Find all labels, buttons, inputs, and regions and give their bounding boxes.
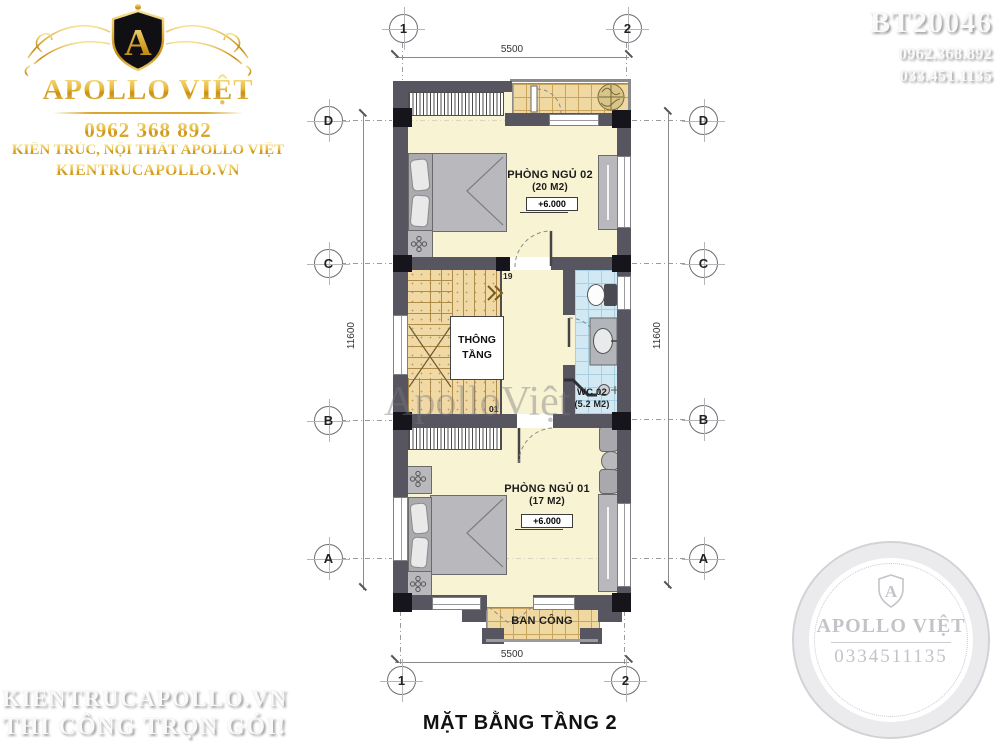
company-seal: A APOLLO VIỆT 0334511135	[792, 541, 990, 739]
stair-direction-arrow	[488, 286, 502, 300]
floor-plan-sheet: A APOLLO VIỆT 0962 368 892 KIẾN TRÚC, NỘ…	[0, 0, 1000, 750]
void-label-box: THÔNG TẦNG	[450, 316, 504, 380]
axis-row-b-left: B	[314, 406, 343, 435]
dim-height-left: 11600	[346, 322, 357, 349]
flourish-right	[166, 26, 251, 76]
flower-icon	[410, 471, 425, 486]
apollo-crest-icon: A	[20, 2, 256, 78]
project-phone-1: 0962.368.892	[806, 44, 992, 64]
seal-inner-ring	[814, 563, 968, 717]
dim-width-bottom: 5500	[395, 649, 629, 660]
axis-row-c-right: C	[689, 249, 718, 278]
dim-line-top	[395, 57, 629, 58]
door-swing-arc	[537, 89, 561, 113]
axis-col-2-bottom: 2	[611, 666, 640, 695]
axis-line	[632, 419, 688, 420]
bedroom2-name: PHÒNG NGỦ 02	[470, 169, 630, 181]
project-code: BT20046	[806, 6, 992, 40]
dim-line-right	[668, 113, 669, 588]
stair-step-number-bottom: 01	[489, 404, 498, 414]
plan-linework	[385, 75, 635, 650]
dim-width-top: 5500	[395, 44, 629, 55]
stair-step-number-top: 19	[503, 271, 512, 281]
axis-line	[632, 263, 688, 264]
brand-name: APOLLO VIỆT	[8, 74, 288, 107]
flower-icon	[411, 236, 426, 251]
footer-watermark-line1: KIENTRUCAPOLLO.VN	[2, 686, 287, 712]
bedroom1-level: +6.000	[521, 514, 573, 528]
void-label: THÔNG TẦNG	[451, 333, 503, 363]
bedroom1-area: (17 M2)	[467, 496, 627, 507]
axis-row-a-right: A	[689, 544, 718, 573]
axis-line	[632, 120, 688, 121]
stair-landing-cross	[409, 326, 451, 387]
balcony-name: BAN CÔNG	[494, 615, 590, 627]
footer-watermark-block: KIENTRUCAPOLLO.VN THI CÔNG TRỌN GÓI!	[2, 686, 287, 741]
project-phone-2: 033.451.1135	[806, 66, 992, 86]
door-leaf	[531, 86, 537, 112]
brand-logo-block: A APOLLO VIỆT 0962 368 892 KIẾN TRÚC, NỘ…	[8, 0, 288, 200]
bedroom1-name: PHÒNG NGỦ 01	[467, 483, 627, 495]
dim-line-left	[363, 115, 364, 590]
axis-col-1-bottom: 1	[387, 666, 416, 695]
crest-finial	[135, 4, 141, 10]
bedroom2-area: (20 M2)	[470, 182, 630, 193]
sink-vanity-icon	[590, 318, 617, 365]
axis-row-b-right: B	[689, 405, 718, 434]
footer-watermark-line2: THI CÔNG TRỌN GÓI!	[2, 714, 287, 741]
wc-area: (5.2 M2)	[557, 399, 627, 409]
door-swing-arc	[519, 428, 554, 463]
level-underline	[520, 212, 568, 213]
flourish-left	[25, 26, 110, 76]
axis-col-1-top: 1	[389, 14, 418, 43]
axis-row-a-left: A	[314, 544, 343, 573]
brand-website: KIENTRUCAPOLLO.VN	[8, 162, 288, 180]
drawing-title: MẶT BẰNG TẦNG 2	[360, 712, 680, 735]
plant-icon	[598, 84, 624, 110]
dim-height-right: 11600	[652, 322, 663, 349]
brand-divider	[53, 112, 243, 114]
axis-row-d-right: D	[689, 106, 718, 135]
brand-phone: 0962 368 892	[8, 118, 288, 143]
axis-col-2-top: 2	[613, 14, 642, 43]
axis-row-d-left: D	[314, 106, 343, 135]
brand-tagline: KIẾN TRÚC, NỘI THẤT APOLLO VIỆT	[4, 142, 292, 159]
project-ref-block: BT20046 0962.368.892 033.451.1135	[806, 6, 992, 86]
toilet-icon	[588, 284, 618, 306]
bedroom2-level: +6.000	[526, 197, 578, 211]
level-underline	[515, 529, 563, 530]
axis-row-c-left: C	[314, 249, 343, 278]
shield-monogram: A	[124, 22, 152, 64]
wc-name: WC 02	[557, 387, 627, 398]
bed-fold-line	[467, 499, 503, 567]
dim-line-bottom	[395, 662, 629, 663]
axis-line	[632, 558, 688, 559]
door-swing-arc	[515, 231, 551, 267]
flower-icon	[410, 576, 425, 591]
